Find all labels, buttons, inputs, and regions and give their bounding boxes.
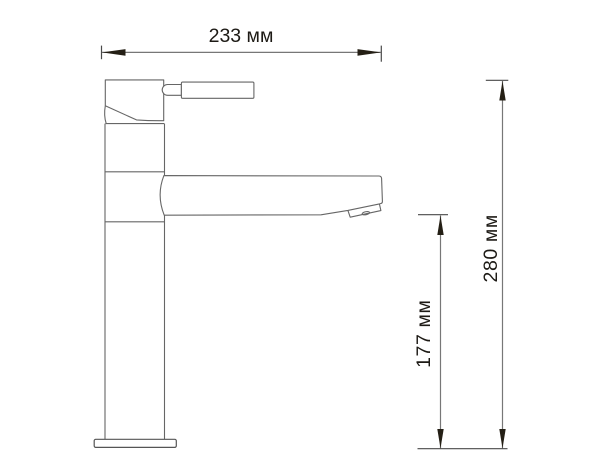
svg-text:280 мм: 280 мм	[480, 214, 502, 282]
svg-text:233 мм: 233 мм	[209, 25, 274, 47]
svg-text:177 мм: 177 мм	[413, 300, 435, 368]
